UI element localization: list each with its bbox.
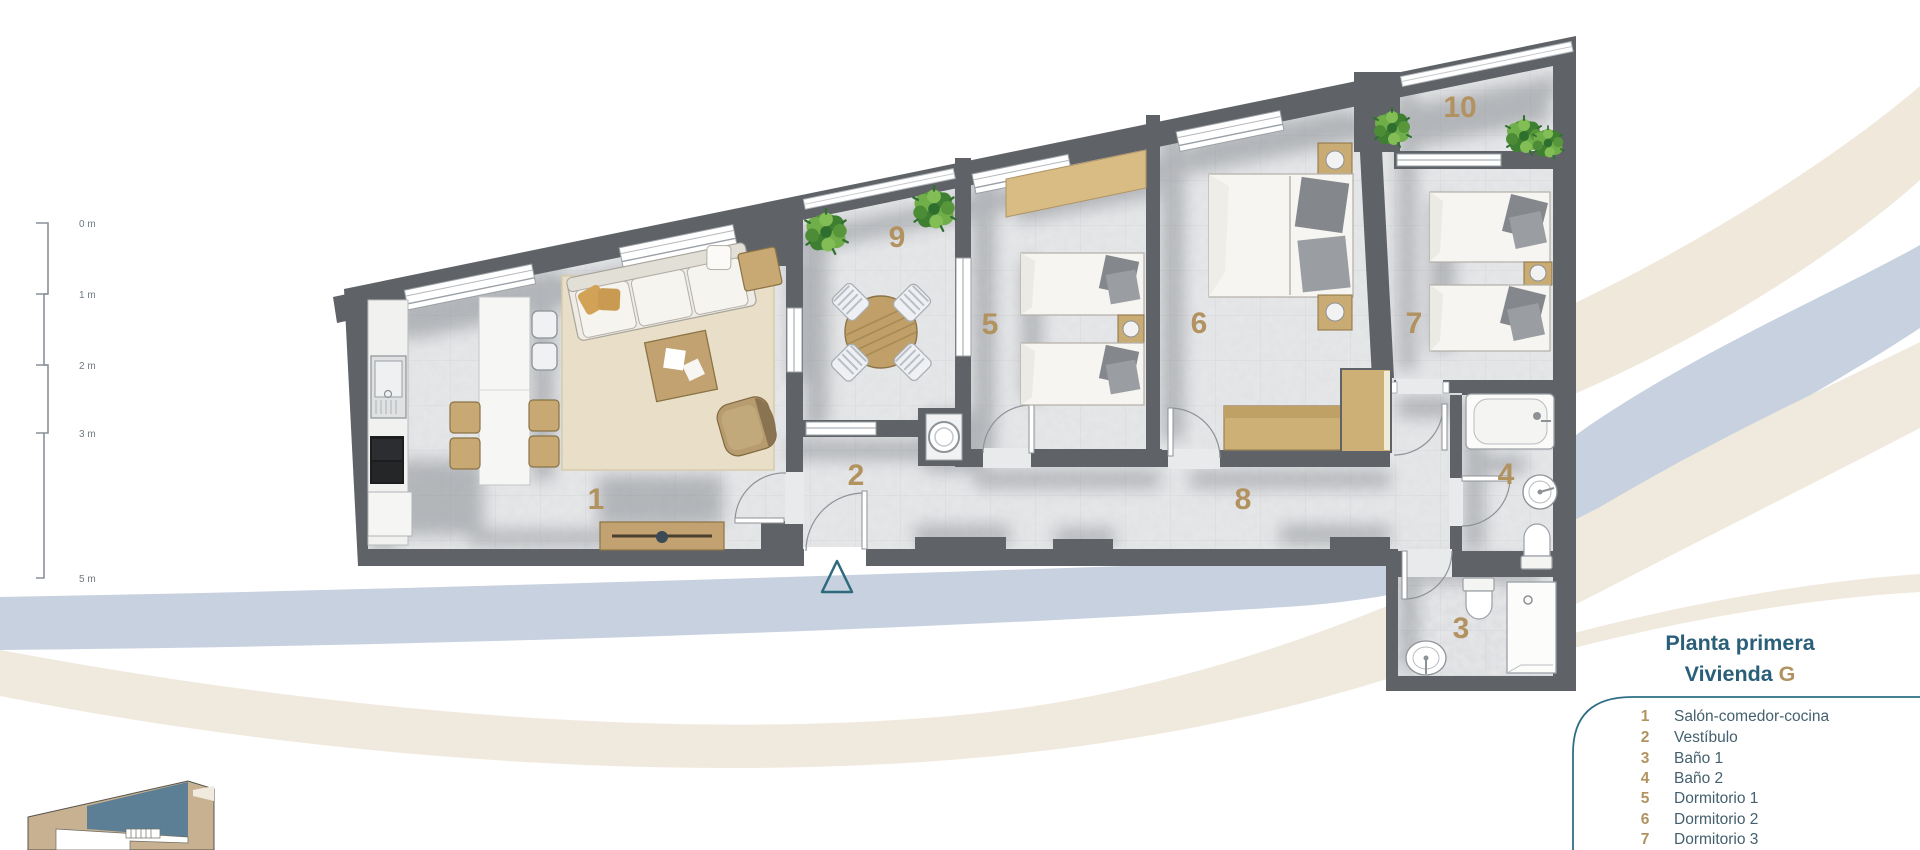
svg-text:4: 4 xyxy=(1641,770,1650,787)
svg-text:6: 6 xyxy=(1641,811,1650,828)
svg-text:1: 1 xyxy=(588,483,605,516)
svg-text:7: 7 xyxy=(1406,307,1423,340)
svg-text:8: 8 xyxy=(1235,483,1252,516)
svg-text:2 m: 2 m xyxy=(79,361,96,372)
svg-text:3 m: 3 m xyxy=(79,429,96,440)
svg-text:Baño 1: Baño 1 xyxy=(1674,750,1723,767)
svg-text:6: 6 xyxy=(1191,307,1208,340)
svg-text:1 m: 1 m xyxy=(79,290,96,301)
svg-text:3: 3 xyxy=(1641,750,1650,767)
svg-text:5: 5 xyxy=(1641,790,1650,807)
svg-text:Vivienda G: Vivienda G xyxy=(1685,662,1796,686)
svg-text:2: 2 xyxy=(848,459,865,492)
svg-text:Dormitorio 1: Dormitorio 1 xyxy=(1674,790,1758,807)
svg-text:4: 4 xyxy=(1498,458,1515,491)
svg-text:Salón-comedor-cocina: Salón-comedor-cocina xyxy=(1674,708,1829,725)
svg-text:2: 2 xyxy=(1641,729,1650,746)
svg-text:7: 7 xyxy=(1641,831,1650,848)
svg-text:Baño 2: Baño 2 xyxy=(1674,770,1723,787)
svg-text:5: 5 xyxy=(982,308,999,341)
svg-text:Planta primera: Planta primera xyxy=(1665,631,1815,655)
svg-text:3: 3 xyxy=(1453,612,1470,645)
svg-text:5 m: 5 m xyxy=(79,574,96,585)
svg-text:9: 9 xyxy=(889,221,906,254)
svg-text:10: 10 xyxy=(1443,91,1476,124)
svg-text:Dormitorio 3: Dormitorio 3 xyxy=(1674,831,1758,848)
svg-text:Vestíbulo: Vestíbulo xyxy=(1674,729,1738,746)
svg-text:Dormitorio 2: Dormitorio 2 xyxy=(1674,811,1758,828)
svg-text:1: 1 xyxy=(1641,708,1650,725)
svg-text:0 m: 0 m xyxy=(79,219,96,230)
